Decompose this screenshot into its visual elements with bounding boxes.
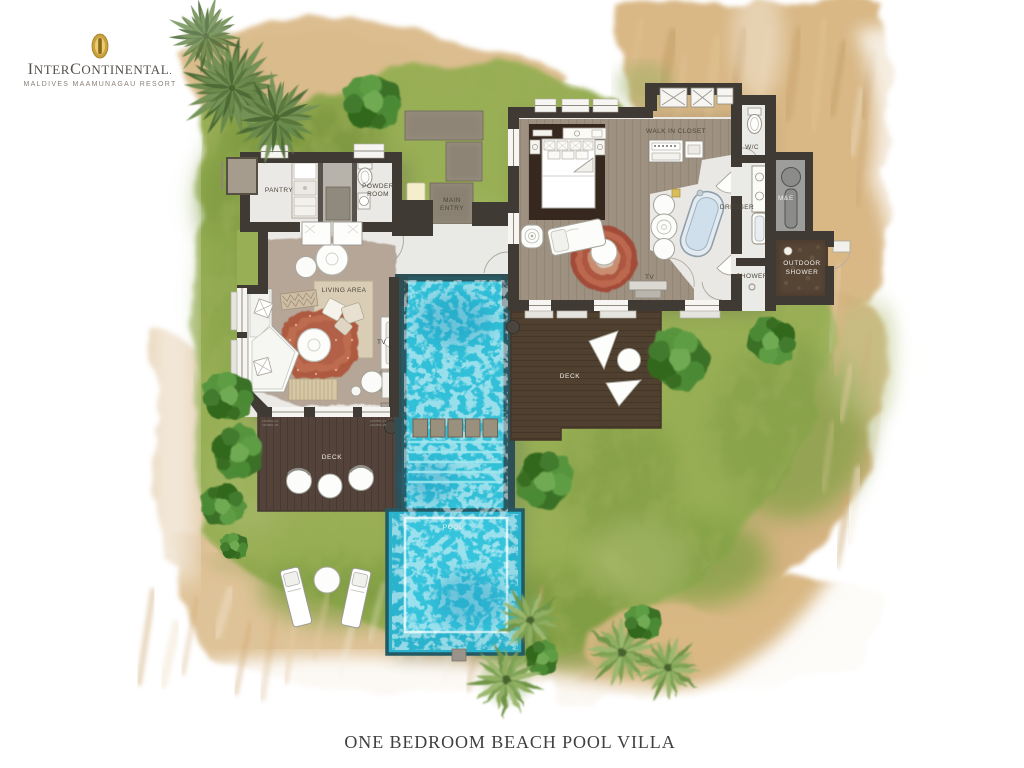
svg-text:SHOWER: SHOWER [786, 269, 819, 276]
svg-text:ROOM: ROOM [367, 191, 389, 198]
svg-text:2402801-2B: 2402801-2B [370, 423, 386, 427]
svg-text:DECK: DECK [322, 454, 343, 461]
svg-text:DRESSER: DRESSER [720, 204, 754, 211]
svg-text:M&E: M&E [778, 195, 794, 202]
svg-text:2402801-1B: 2402801-1B [262, 423, 278, 427]
svg-text:SHOWER: SHOWER [736, 273, 768, 280]
svg-text:OUTDOOR: OUTDOOR [783, 260, 820, 267]
svg-text:ENTRY: ENTRY [440, 205, 464, 212]
svg-text:W/C: W/C [745, 144, 759, 151]
svg-text:DECK: DECK [560, 373, 581, 380]
svg-text:WALK IN CLOSET: WALK IN CLOSET [646, 128, 706, 135]
svg-text:TV: TV [377, 339, 386, 346]
svg-text:MALDIVES MAAMUNAGAU RESORT: MALDIVES MAAMUNAGAU RESORT [23, 81, 176, 88]
svg-text:TV: TV [645, 274, 654, 281]
svg-text:POOL: POOL [443, 524, 463, 531]
svg-text:MAIN: MAIN [443, 197, 461, 204]
svg-text:INTERCONTINENTAL.: INTERCONTINENTAL. [28, 61, 172, 78]
svg-text:LIVING AREA: LIVING AREA [322, 287, 367, 294]
svg-text:POWDER: POWDER [362, 183, 394, 190]
svg-text:ONE BEDROOM BEACH POOL VILLA: ONE BEDROOM BEACH POOL VILLA [344, 732, 675, 752]
svg-text:PANTRY: PANTRY [265, 187, 293, 194]
